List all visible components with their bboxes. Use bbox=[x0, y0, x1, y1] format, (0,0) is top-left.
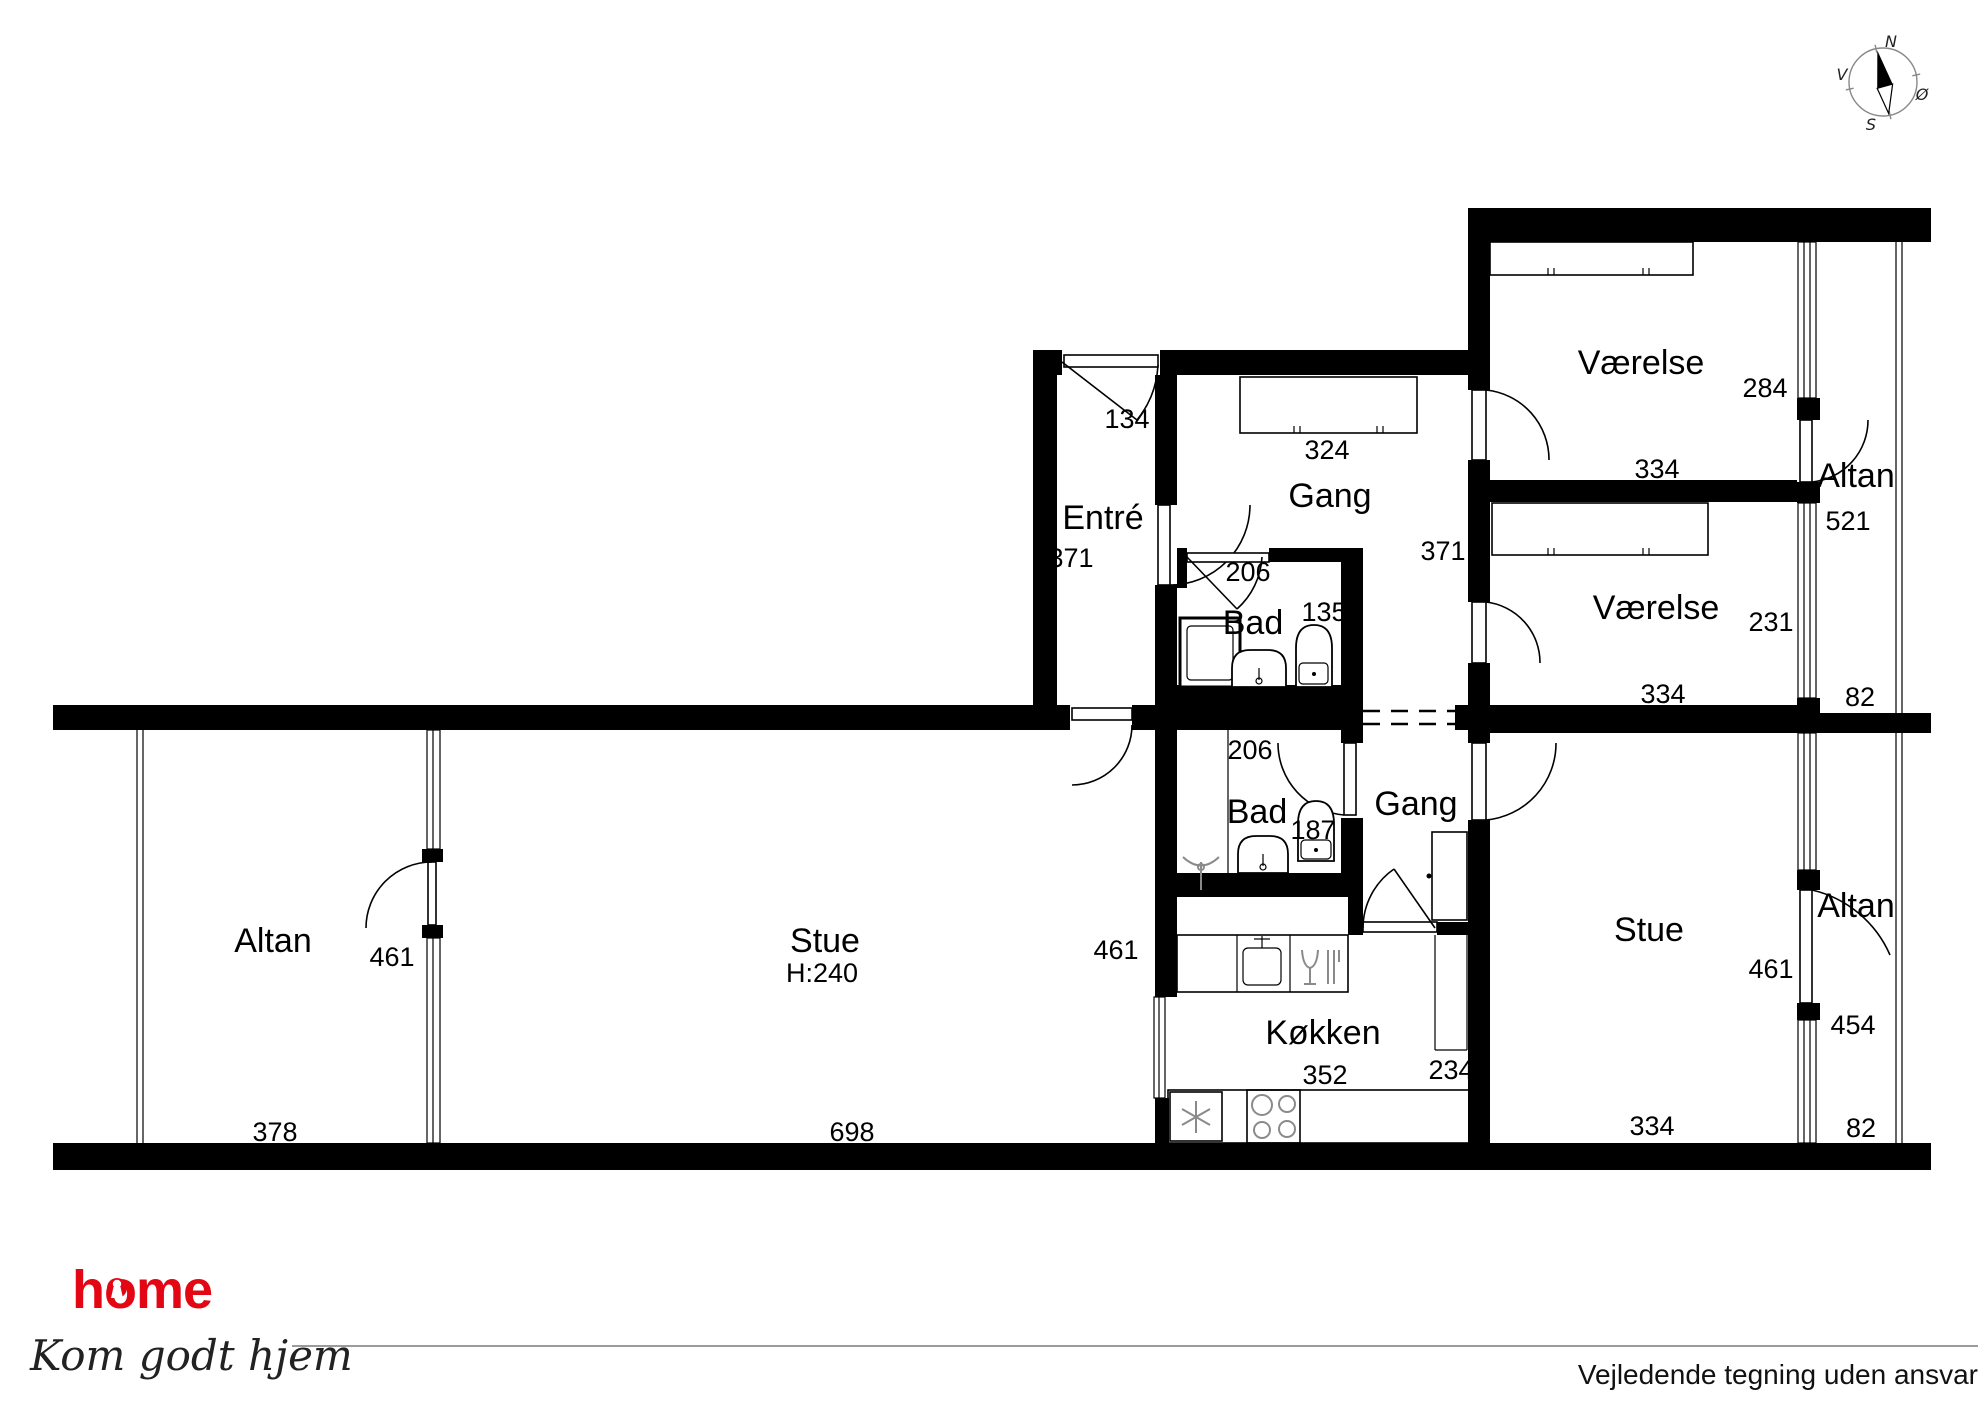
room-label-stue-right: Stue bbox=[1614, 911, 1684, 949]
dim-vaerelse-top-width: 334 bbox=[1634, 454, 1679, 484]
dim-bad-lower-door: 206 bbox=[1227, 735, 1272, 765]
floor-plan-page: Altan Stue H:240 Entré Gang Bad Bad Gang… bbox=[0, 0, 1984, 1403]
room-label-bad-upper: Bad bbox=[1223, 604, 1284, 642]
dim-gang-upper-height: 371 bbox=[1420, 536, 1465, 566]
room-label-bad-lower: Bad bbox=[1227, 793, 1288, 831]
dim-entre-height: 371 bbox=[1048, 543, 1093, 573]
dim-stue-right-height: 461 bbox=[1748, 954, 1793, 984]
dim-stue-right-width: 334 bbox=[1629, 1111, 1674, 1141]
footer: home Kom godt hjem Vejledende tegning ud… bbox=[29, 1260, 1978, 1390]
dim-altan-bottom-width: 82 bbox=[1846, 1113, 1876, 1143]
compass-rose: N V Ø S bbox=[1837, 32, 1929, 134]
wall-opening-dashed bbox=[1363, 711, 1461, 724]
dim-stue-left-height: 461 bbox=[1093, 935, 1138, 965]
dim-gang-closet: 324 bbox=[1304, 435, 1349, 465]
floor-plan-drawing: Altan Stue H:240 Entré Gang Bad Bad Gang… bbox=[0, 0, 1984, 1403]
dishwasher-icon bbox=[1302, 950, 1339, 984]
home-logo: home bbox=[72, 1260, 212, 1320]
room-label-entre: Entré bbox=[1062, 499, 1143, 537]
dim-entre-door: 134 bbox=[1104, 404, 1149, 434]
room-label-vaerelse-mid: Værelse bbox=[1593, 589, 1720, 627]
compass-west-label: V bbox=[1837, 65, 1849, 84]
dim-altan-top-height: 521 bbox=[1825, 506, 1870, 536]
dim-vaerelse-mid-height: 231 bbox=[1748, 607, 1793, 637]
brand-tagline: Kom godt hjem bbox=[29, 1331, 353, 1380]
dim-bad-lower-width: 187 bbox=[1290, 815, 1335, 845]
dim-kokken-shaft: 234 bbox=[1428, 1055, 1473, 1085]
compass-south-label: S bbox=[1866, 115, 1876, 134]
dim-vaerelse-top-height: 284 bbox=[1742, 373, 1787, 403]
room-label-altan-top-right: Altan bbox=[1817, 457, 1895, 495]
dim-bad-upper-door: 206 bbox=[1225, 557, 1270, 587]
dim-altan-left-width: 378 bbox=[252, 1117, 297, 1147]
keyhole-icon bbox=[113, 1280, 121, 1288]
room-label-gang-upper: Gang bbox=[1288, 477, 1371, 515]
ceiling-height-label: H:240 bbox=[786, 958, 858, 988]
compass-north-label: N bbox=[1885, 32, 1897, 51]
room-label-stue-left: Stue bbox=[790, 922, 860, 960]
compass-needle bbox=[1838, 37, 1928, 127]
dim-stue-left-width: 698 bbox=[829, 1117, 874, 1147]
room-label-kokken: Køkken bbox=[1265, 1014, 1380, 1052]
toilet-icon bbox=[1296, 625, 1332, 687]
kitchen-sink-icon bbox=[1243, 948, 1281, 985]
room-label-gang-lower: Gang bbox=[1374, 785, 1457, 823]
dim-altan-left-height: 461 bbox=[369, 942, 414, 972]
dim-kokken-width: 352 bbox=[1302, 1060, 1347, 1090]
dim-bad-upper-width: 135 bbox=[1301, 597, 1346, 627]
brand-wordmark: home bbox=[72, 1260, 212, 1320]
room-label-altan-left: Altan bbox=[234, 922, 312, 960]
compass-east-label: Ø bbox=[1915, 85, 1929, 104]
dim-altan-top-width: 82 bbox=[1845, 682, 1875, 712]
disclaimer-text: Vejledende tegning uden ansvar bbox=[1578, 1359, 1978, 1390]
dim-altan-bottom-door: 454 bbox=[1830, 1010, 1875, 1040]
room-label-altan-bottom-right: Altan bbox=[1817, 887, 1895, 925]
dim-vaerelse-mid-width: 334 bbox=[1640, 679, 1685, 709]
room-label-vaerelse-top: Værelse bbox=[1578, 344, 1705, 382]
